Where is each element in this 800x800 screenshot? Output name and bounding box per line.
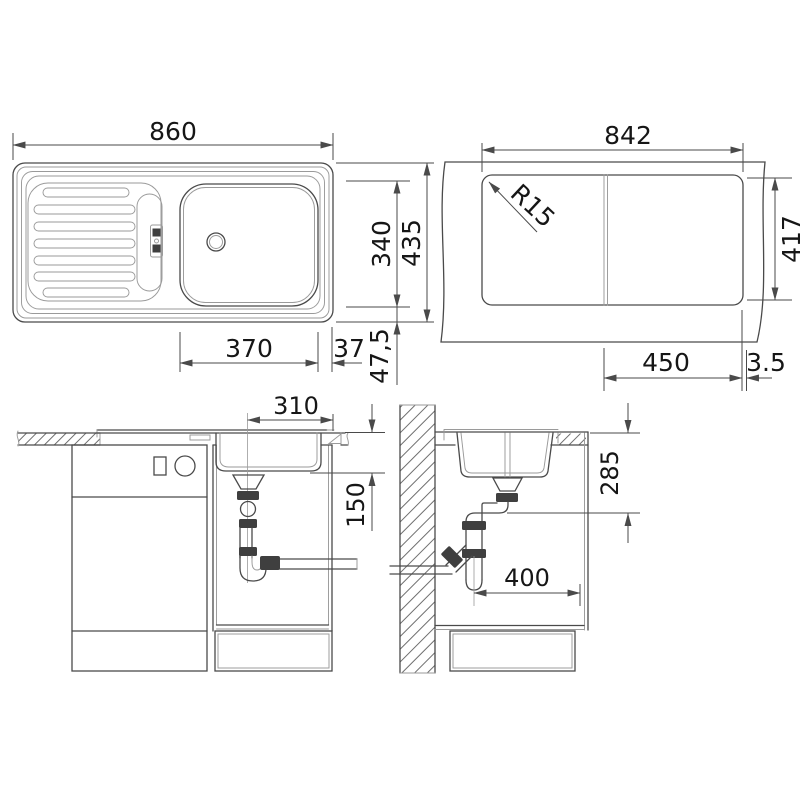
plinth-front [215,631,332,671]
union-nut [239,519,257,528]
sink-installation-drawing: 860 340 435 370 37 47,5 [0,0,800,800]
drain-outlet [493,478,522,491]
dim-label-450: 450 [642,348,690,377]
sink-outline [13,163,333,322]
dim-label-417: 417 [777,215,800,263]
dim-label-860: 860 [149,117,197,146]
cutout-view: R15 842 417 450 3.5 [441,121,800,391]
bowl [180,184,318,306]
side-section-view: 285 400 [390,403,640,673]
outlet-nut [260,556,280,570]
appliance-cabinet [72,445,207,671]
dim-label-150: 150 [342,482,370,528]
bowl-section-side [457,433,553,477]
dim-label-400: 400 [504,564,550,592]
control-knob [175,456,195,476]
dim-310: 310 [248,392,334,431]
dim-150: 150 [310,404,385,531]
union-nut [496,493,518,502]
worktop-side [435,430,588,631]
union-nut [462,521,486,530]
dim-label-310: 310 [273,392,319,420]
dim-label-435: 435 [397,219,426,267]
worktop-slab [441,162,765,342]
dim-860: 860 [13,117,333,160]
control-switch [154,457,166,475]
dim-370: 370 [180,332,318,372]
cutout-divider [604,175,608,305]
underdeck-fitting [190,435,210,440]
worktop-cut [556,434,586,445]
worktop-front [17,430,348,446]
dim-3-5: 3.5 [746,348,786,391]
dim-label-370: 370 [225,334,273,363]
dim-label-37: 37 [333,334,365,363]
dim-label-3-5: 3.5 [746,348,786,377]
dim-label-285: 285 [596,450,624,496]
union-nut [239,547,257,556]
bowl-section-front [216,433,321,471]
drainboard [28,183,163,301]
dim-450: 450 [604,310,742,391]
plan-view: 860 340 435 370 37 47,5 [13,117,434,385]
siphon-front [233,413,357,583]
wall-section [400,405,435,673]
dim-label-47-5: 47,5 [365,328,394,384]
drainboard-ribs [34,188,135,297]
dim-label-340: 340 [367,220,396,268]
plinth-side [450,631,575,671]
dim-400: 400 [474,564,580,606]
union-nut [237,491,259,500]
worktop-cut-corner [329,434,341,444]
drain-outlet [233,475,264,489]
dim-label-842: 842 [604,121,652,150]
dim-842: 842 [482,121,743,172]
dim-37: 37 [332,327,365,372]
angled-nut [441,546,464,569]
front-section-view: 310 150 [17,392,385,671]
dim-label-r15: R15 [505,178,561,233]
sink-cabinet-side [435,626,584,672]
ball-joint [241,502,256,517]
dim-417: 417 [747,178,800,300]
technical-drawing-page: 860 340 435 370 37 47,5 [0,0,800,800]
label-r15: R15 [489,178,561,233]
dim-47-5: 47,5 [365,307,397,385]
